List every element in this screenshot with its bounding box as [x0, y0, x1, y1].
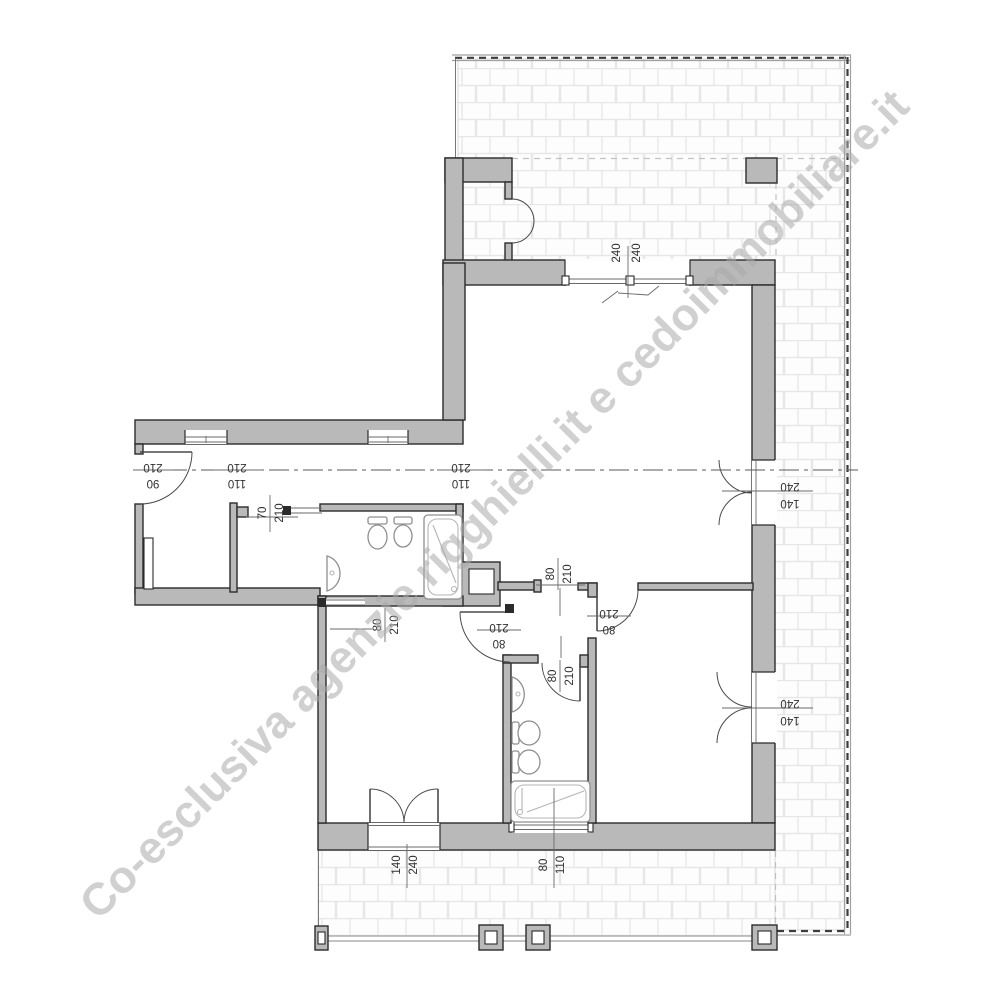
pillar-balcony-4 — [752, 925, 777, 950]
svg-text:140: 140 — [780, 714, 799, 726]
svg-text:80: 80 — [493, 637, 506, 649]
svg-text:110: 110 — [555, 856, 567, 874]
sink-icon — [327, 556, 340, 591]
toilet-icon — [368, 517, 387, 549]
svg-text:210: 210 — [562, 564, 574, 583]
closet-sliding-door — [283, 506, 322, 515]
svg-text:110: 110 — [452, 477, 470, 489]
hall-window-b — [368, 430, 408, 444]
dim-entry-door: 210 90 — [143, 461, 162, 489]
window-opening-marker — [602, 286, 659, 303]
wall-jamb — [534, 580, 541, 592]
svg-text:90: 90 — [147, 477, 160, 489]
svg-text:240: 240 — [780, 480, 799, 492]
wall-bath2-left — [503, 655, 511, 823]
dim-hall-window-b: 210 110 — [451, 461, 470, 489]
bathroom2-window — [509, 821, 593, 833]
wall-leftwing-top — [135, 420, 463, 444]
dim-closet-door: 70 210 — [257, 503, 286, 522]
svg-text:210: 210 — [143, 461, 162, 473]
svg-text:210: 210 — [451, 461, 470, 473]
floor-plan-svg: 240 240 210 90 210 110 210 110 70 210 80… — [0, 0, 1000, 1000]
svg-text:140: 140 — [780, 497, 799, 509]
svg-text:240: 240 — [408, 855, 420, 874]
wall-jamb — [588, 583, 597, 597]
wall-hall-stub — [498, 582, 538, 590]
pillar-terrace — [746, 158, 777, 183]
sink-icon — [512, 677, 524, 712]
dim-bathroom2-door: 80 210 — [547, 666, 576, 685]
wall-junction — [443, 263, 465, 420]
toilet-icon — [512, 721, 540, 745]
bidet-icon — [512, 750, 540, 774]
wall-bath1-top — [320, 504, 463, 511]
bathtub-icon — [511, 781, 590, 822]
svg-text:70: 70 — [257, 507, 269, 520]
dim-hall-window-a: 210 110 — [227, 461, 246, 489]
french-door-lower — [717, 672, 777, 743]
wall-jamb — [580, 655, 588, 667]
svg-text:210: 210 — [564, 666, 576, 685]
svg-text:140: 140 — [391, 855, 403, 874]
wall-left-lower — [135, 504, 143, 594]
wall-jamb — [505, 243, 512, 262]
wall-leftwing-bottom — [135, 588, 320, 605]
pillar-balcony-3 — [526, 925, 550, 950]
bathroom-2-fixtures — [511, 677, 590, 822]
dim-living-hall-opening: 80 210 — [545, 564, 574, 583]
svg-text:210: 210 — [489, 621, 508, 633]
svg-text:210: 210 — [227, 461, 246, 473]
svg-text:80: 80 — [547, 670, 559, 683]
bidet-icon — [394, 517, 412, 547]
pillar-balcony-1 — [315, 926, 328, 950]
svg-text:210: 210 — [599, 607, 618, 619]
wall-terrace-column — [445, 158, 463, 262]
dim-bedroom1-hall-door: 210 80 — [489, 621, 508, 649]
svg-text:240: 240 — [780, 697, 799, 709]
wall-niche — [144, 538, 153, 589]
svg-text:80: 80 — [545, 568, 557, 581]
bedroom1-french-door — [368, 789, 440, 850]
shaft-void — [469, 569, 494, 594]
wall-small-room — [230, 503, 237, 592]
wall-jamb — [505, 182, 512, 199]
floor-plan-page: 240 240 210 90 210 110 210 110 70 210 80… — [0, 0, 1000, 1000]
svg-text:80: 80 — [603, 623, 616, 635]
wall-hinge-block — [237, 507, 248, 517]
svg-text:240: 240 — [611, 243, 623, 262]
hall-window-a — [185, 430, 227, 444]
svg-text:240: 240 — [631, 243, 643, 262]
svg-text:110: 110 — [228, 477, 246, 489]
svg-text:80: 80 — [538, 859, 550, 872]
pillar-balcony-2 — [479, 925, 503, 950]
svg-text:210: 210 — [274, 503, 286, 522]
wall-bed2-top-r — [638, 583, 753, 590]
